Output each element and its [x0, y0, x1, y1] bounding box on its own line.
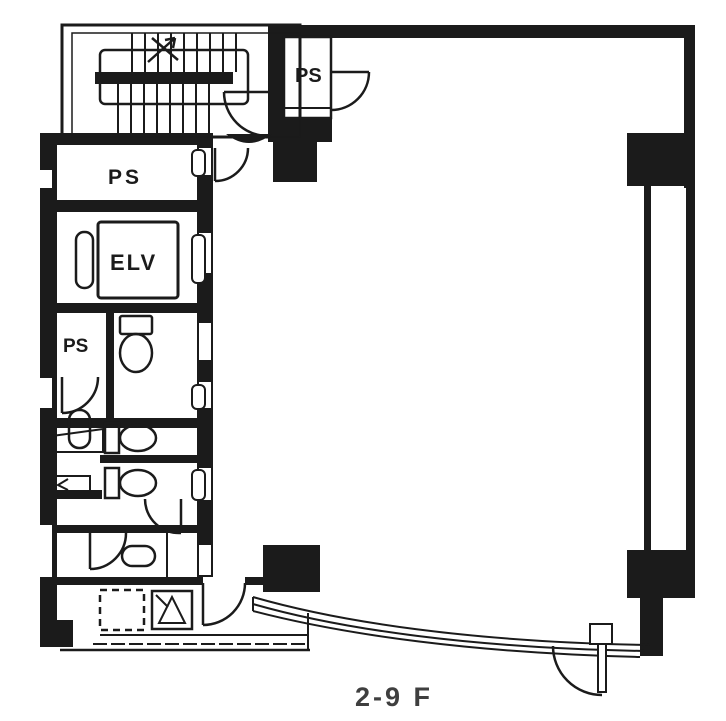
stairwell	[62, 25, 300, 143]
ps-upper-label: PS	[108, 166, 142, 189]
wall-h2	[57, 200, 197, 212]
door-arc	[62, 377, 98, 413]
door-jamb-3	[192, 385, 205, 409]
floor-range-label: 2-9 F	[355, 682, 433, 712]
column-bottom-center	[263, 545, 320, 592]
elevator-counterweight	[76, 232, 93, 288]
toilet-icon	[105, 468, 156, 498]
elevator-label: ELV	[110, 250, 157, 275]
toilet-icon	[120, 316, 152, 372]
wall-h8	[57, 577, 203, 585]
entrance-door-leaf	[598, 644, 606, 692]
stairwell-inner-line	[72, 33, 300, 137]
urinal-icon	[69, 410, 90, 448]
ps-upper-door-arc	[215, 148, 248, 181]
interior-walls	[50, 30, 332, 585]
floor-plan-drawing: PS PS ELV PS	[0, 0, 726, 721]
wall-h6	[57, 490, 102, 499]
column-bottom-right-stem	[640, 598, 663, 656]
wall-v1	[106, 312, 114, 418]
divider-opening-3	[199, 323, 211, 360]
ps-room-lower-left: PS	[63, 336, 88, 357]
right-window-inner-line	[644, 186, 651, 552]
right-wall-lower	[686, 186, 695, 598]
door-jamb-2	[192, 235, 205, 283]
column-top-right	[627, 133, 685, 186]
ps-lower-label: PS	[63, 336, 88, 357]
wall-h1	[57, 133, 213, 145]
wc-stall-2	[52, 410, 156, 453]
wall-h5	[100, 455, 197, 463]
wc-stall-3	[50, 468, 181, 533]
elevator-room: ELV	[76, 222, 178, 298]
door-jamb-4	[192, 470, 205, 500]
left-wall-window-3	[40, 525, 52, 577]
structural-columns	[263, 120, 686, 656]
sink-unit-box	[152, 591, 192, 629]
entrance-door	[553, 624, 612, 695]
ps-room-top-right: PS	[284, 37, 369, 118]
stair-handrail	[95, 72, 233, 84]
divider-opening-6	[199, 545, 211, 575]
ps-room-upper-left: PS	[108, 148, 248, 189]
counter-edge-lines	[60, 613, 310, 650]
left-wall-foot	[40, 620, 73, 647]
exterior-walls	[40, 25, 695, 647]
urinal-icon	[122, 546, 155, 566]
ps-top-door-arc	[331, 72, 369, 110]
door-arc	[90, 533, 126, 569]
stair-treads-upper	[132, 33, 236, 72]
floor-plan-page: PS PS ELV PS	[0, 0, 726, 721]
column-bottom-right	[627, 550, 686, 598]
right-wall-upper	[684, 25, 695, 188]
door-jamb-1	[192, 150, 205, 176]
ps-top-left-wall	[268, 30, 284, 142]
stair-treads-lower	[118, 84, 209, 135]
door-threshold-shade	[226, 134, 272, 143]
left-wall-window-1	[40, 170, 52, 188]
ps-top-label: PS	[295, 65, 322, 87]
left-wall-window-2	[40, 378, 52, 408]
wall-h9	[245, 577, 263, 585]
entry-door-arc	[203, 583, 245, 625]
entrance-door-frame	[590, 624, 612, 644]
dashed-hatch-box	[100, 590, 144, 630]
wall-openings	[40, 148, 211, 577]
wall-h3	[57, 303, 197, 313]
wc-stall-4	[90, 532, 167, 577]
